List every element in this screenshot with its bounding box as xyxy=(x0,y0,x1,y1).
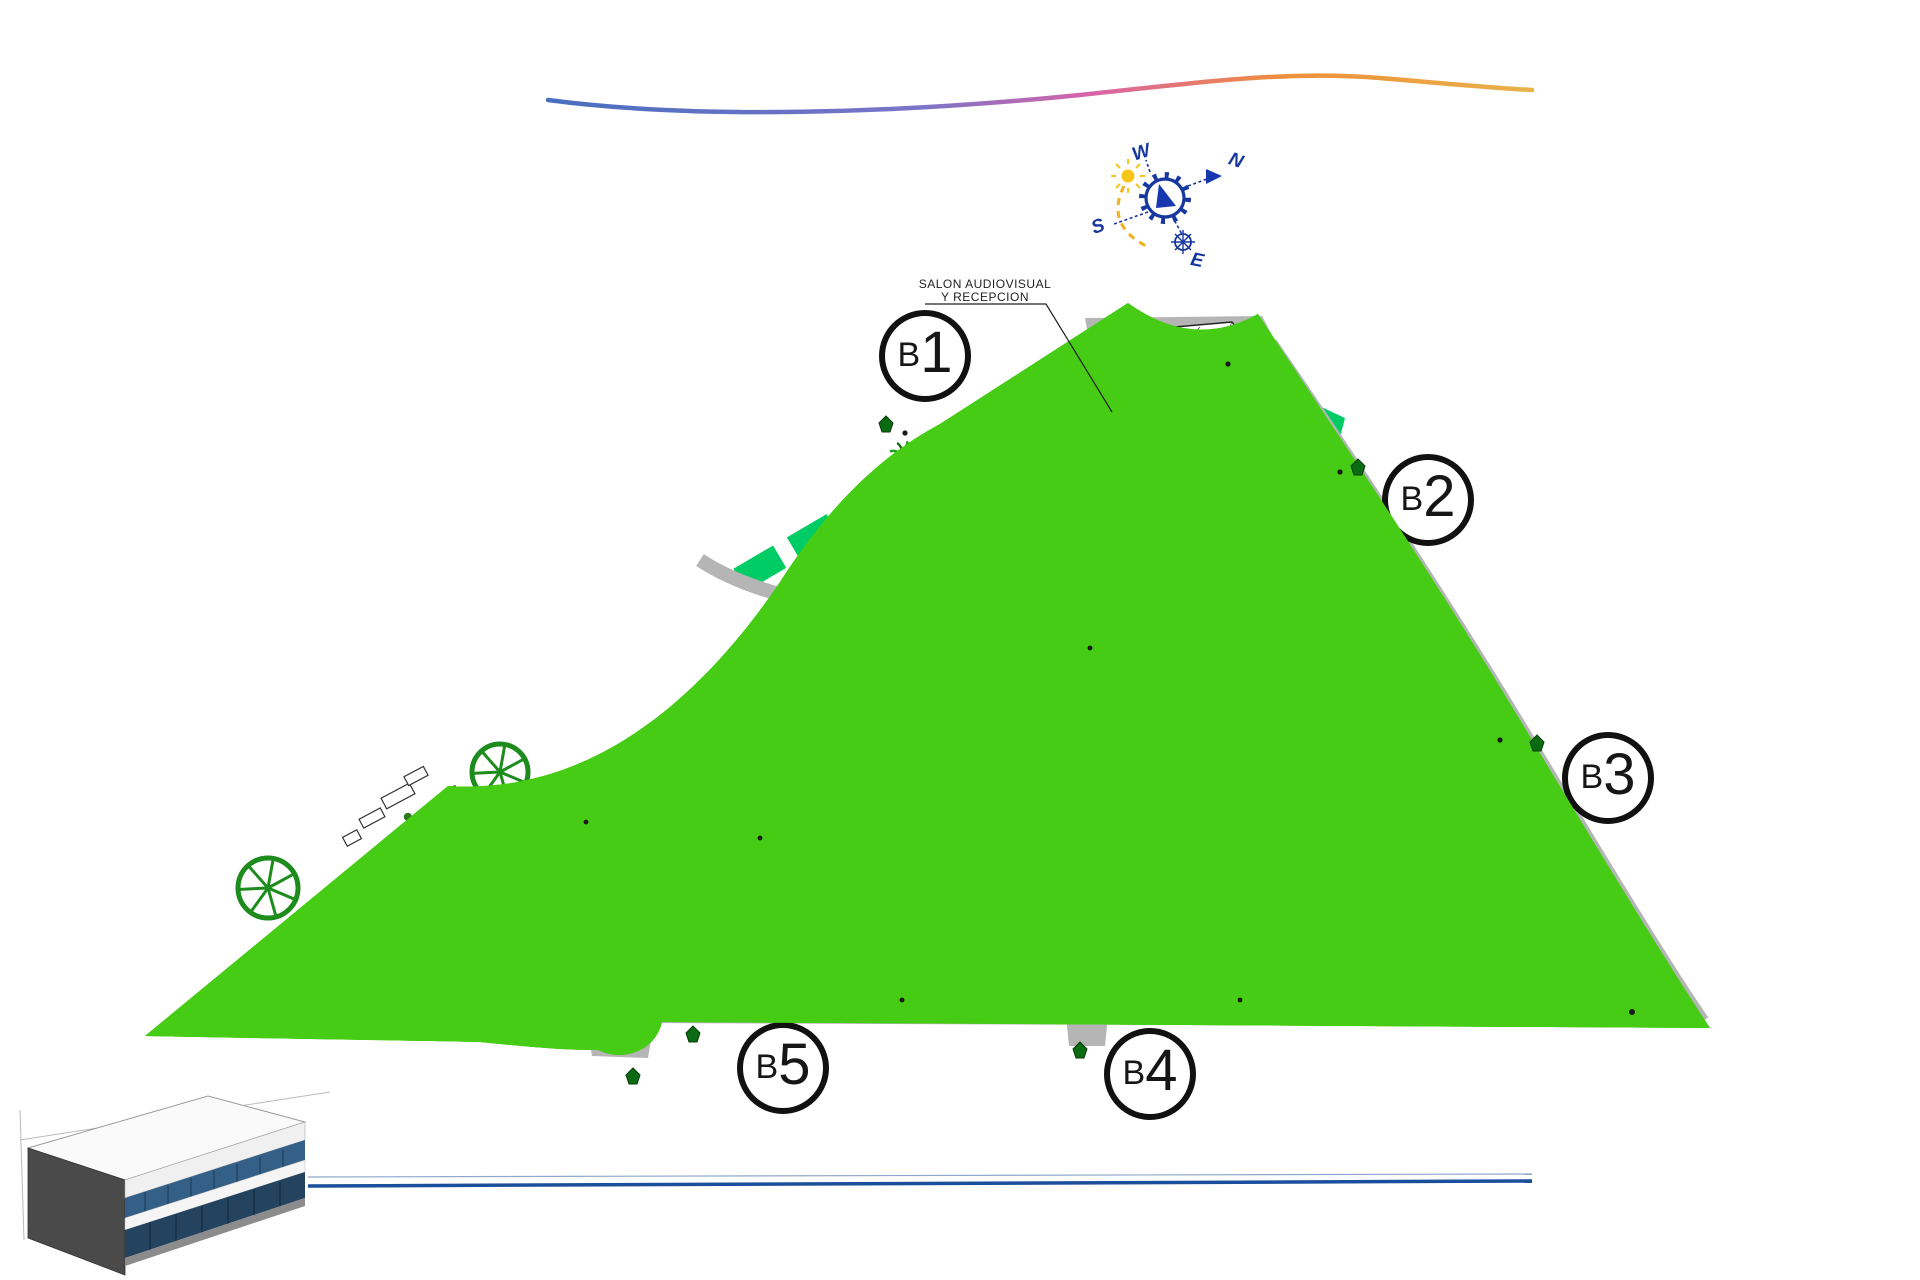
north-arrow xyxy=(1206,169,1222,184)
building-render-3d xyxy=(20,1092,330,1275)
svg-text:N: N xyxy=(1226,149,1247,174)
compass-rose: W N S E xyxy=(1089,139,1248,272)
svg-text:Y RECEPCION: Y RECEPCION xyxy=(941,290,1029,304)
header-gradient-wave xyxy=(548,76,1532,113)
footer-divider-line xyxy=(308,1174,1532,1186)
building-label-b4: B4 xyxy=(1107,1031,1193,1117)
svg-text:W: W xyxy=(1130,139,1156,165)
site-plan-svg: PETANCA GIMNASIA JJ PROPERTIES xyxy=(0,0,1920,1280)
svg-text:S: S xyxy=(1089,215,1108,239)
east-sun-glyph xyxy=(1171,230,1195,254)
tree-icon xyxy=(238,858,298,918)
building-label-b1: B1 xyxy=(882,313,968,399)
building-label-b3: B3 xyxy=(1565,735,1651,821)
svg-text:SALON AUDIOVISUAL: SALON AUDIOVISUAL xyxy=(919,277,1052,291)
svg-text:E: E xyxy=(1189,249,1207,272)
site-plan-page: { "watermark": { "text": "JJ PROPERTIES"… xyxy=(0,0,1920,1280)
building-label-b5: B5 xyxy=(740,1025,826,1111)
site-boundary xyxy=(145,303,1710,1055)
